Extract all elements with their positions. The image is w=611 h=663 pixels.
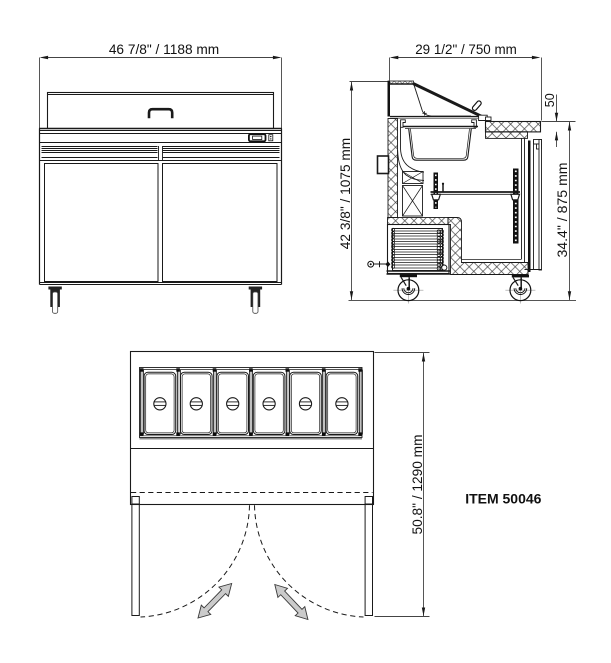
svg-text:50.8" / 1290 mm: 50.8" / 1290 mm — [410, 435, 425, 535]
svg-text:42 3/8" / 1075 mm: 42 3/8" / 1075 mm — [338, 138, 353, 249]
svg-text:34.4" / 875 mm: 34.4" / 875 mm — [554, 162, 570, 257]
svg-text:29 1/2" / 750 mm: 29 1/2" / 750 mm — [415, 42, 517, 57]
svg-text:ITEM 50046: ITEM 50046 — [465, 491, 541, 507]
svg-text:46 7/8" / 1188 mm: 46 7/8" / 1188 mm — [109, 42, 219, 57]
svg-text:50: 50 — [543, 93, 557, 107]
